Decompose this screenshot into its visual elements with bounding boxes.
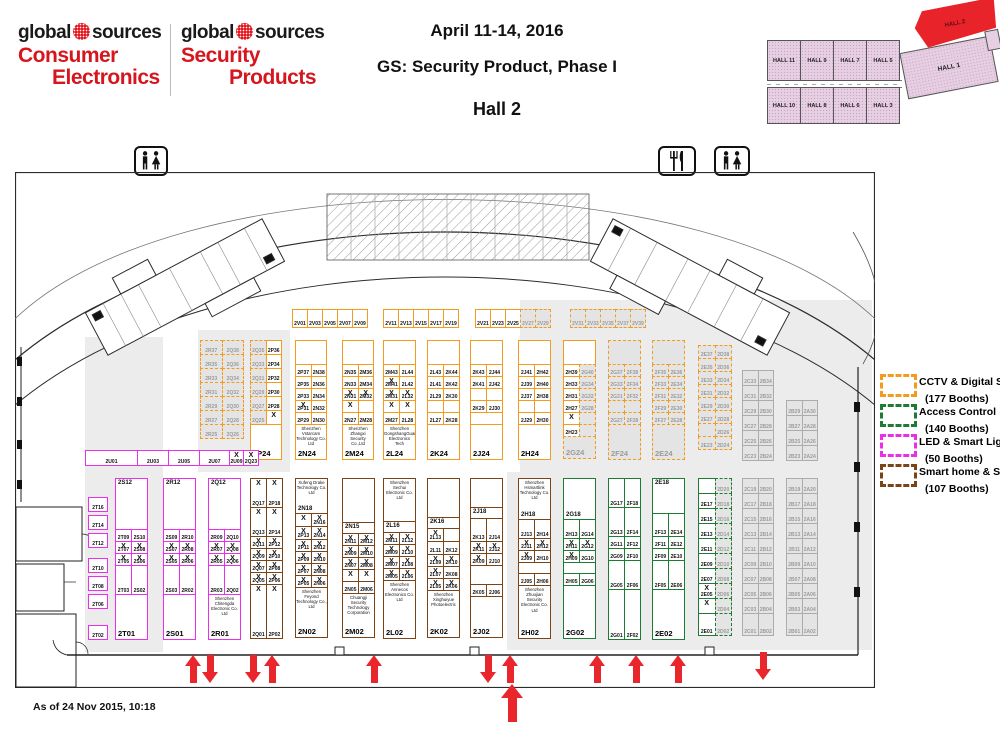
booth-row: 2B272A28 <box>786 415 818 431</box>
booth-row: 2Q25X <box>250 410 282 425</box>
booth-cell: 2B08 <box>758 568 775 584</box>
booth-cell: X <box>266 410 283 425</box>
booth-cell: 2T14 <box>88 515 108 530</box>
legend-swatch <box>880 434 917 457</box>
aisle-label: 2F24 <box>611 449 628 458</box>
booth-cell: 2T16 <box>88 497 108 512</box>
booth-row: 2B292A30 <box>786 400 818 416</box>
booth-number: 2A24 <box>803 454 818 460</box>
booth-cell: Shenzhen Chitengda Electronic Co. Ltd2R0… <box>208 594 241 640</box>
booth-cell: Shenzhen Zhuojian Security Electronic Co… <box>518 585 551 639</box>
booth-cell: 2Q27 <box>250 396 267 411</box>
booth-cell: 2R31 <box>200 382 223 397</box>
booth-cell: 2D38 <box>715 345 733 359</box>
booth-column: 2B192A202B172A182B152A162B132A142B112A12… <box>786 478 818 636</box>
booth-cell: 2R02 <box>179 565 196 595</box>
booth-row: 2C052B06 <box>742 583 774 599</box>
booth-column: 2S122T092S10X2T07X2S08X2T05X2S062T032S02… <box>115 478 148 640</box>
booth-row: 2B152A16 <box>786 508 818 524</box>
booth-cell: 2R03 <box>208 565 225 595</box>
booth-row: 2B192A20 <box>786 478 818 494</box>
fork-knife-glyph <box>665 150 689 172</box>
booth-cell: 2K24 <box>427 424 460 460</box>
booth-cell: 2S03 <box>163 565 180 595</box>
booth-cell: 2B12 <box>758 538 775 554</box>
booth-number: 2V29 <box>536 321 550 327</box>
booth-cell <box>563 340 596 365</box>
x-mark: X <box>384 402 399 409</box>
booth-number: 2B01 <box>787 629 802 635</box>
booth-cell: 2V39 <box>630 309 646 328</box>
booth-cell <box>698 423 716 437</box>
booth-row: 2C012B02 <box>742 613 774 636</box>
booth-column: 2P372N382P352N362P332N34X2P312N322P292N3… <box>295 340 327 460</box>
booth-row: 2C112B12 <box>742 538 774 554</box>
booth-row: 2T032S02 <box>115 565 148 595</box>
booth-cell <box>295 340 327 365</box>
exhibitor-name: Shenzhen Chitengda Electronic Co. Ltd <box>209 596 240 617</box>
minimap-hall-fragment <box>984 29 1000 51</box>
booth-cell: 2B14 <box>758 523 775 539</box>
booth-cell: 2C17 <box>742 493 759 509</box>
booth-cell: 2F24 <box>608 424 641 460</box>
legend-swatch <box>880 374 917 397</box>
booth-cell: 2P32 <box>266 368 283 383</box>
booth-column: 2L432K442L412K422L292K302L272K282K24 <box>427 340 460 460</box>
floor-plan-page: { "logos": [ {"brand_a": "global", "bran… <box>0 0 1000 746</box>
booth-cell: 2U01 <box>85 450 138 466</box>
booth-cell: 2B32 <box>758 385 775 401</box>
booth-cell: 2E37 <box>698 345 716 359</box>
booth-cell: X2P14 <box>266 507 283 537</box>
booth-cell: 2B28 <box>758 415 775 431</box>
minimap-hall-cell: HALL 7 <box>833 40 867 81</box>
booth-cell: X2Q13 <box>250 507 267 537</box>
booth-number: 2U05 <box>169 459 199 465</box>
booth-cell: 2V31 <box>570 309 586 328</box>
booth-strip: 2V212V232V252V272V29 <box>475 309 551 328</box>
minimap-hall1: HALL 1 <box>899 36 998 100</box>
booth-row: 2J132H14 <box>518 519 551 539</box>
man-woman-glyph <box>138 150 164 172</box>
booth-cell <box>443 528 460 542</box>
booth-row: 2G172F18 <box>608 478 641 508</box>
booth-cell: 2Q33 <box>250 354 267 369</box>
booth-cell: 2V37 <box>615 309 631 328</box>
booth-cell: 2B20 <box>758 478 775 494</box>
booth-cell: 2E33 <box>698 371 716 385</box>
booth-row: 2E092D10 <box>698 553 732 569</box>
legend-label: Access Control <box>919 406 996 418</box>
entrance-arrow-up <box>589 655 605 683</box>
booth-number: 2R25 <box>201 432 222 438</box>
booth-number: 2G01 <box>609 633 624 639</box>
booth-cell: 2A06 <box>802 583 819 599</box>
booth-column: 2B292A302B272A282B252A262B232A24 <box>786 400 818 461</box>
exhibitor-name: Shenzhen GongshangGuangtian Electronics … <box>384 426 415 447</box>
booth-row: XX2N16 <box>295 513 328 527</box>
section-label: 2N18 <box>298 506 312 512</box>
booth-cell: 2L11 <box>427 541 444 555</box>
brand-global: global <box>181 22 234 43</box>
booth-cell: 2V09 <box>352 309 368 328</box>
booth-cell: 2A12 <box>802 538 819 554</box>
booth-row: 2Q292P30 <box>250 382 282 397</box>
booth-cell: Chuangji Security Technology Corporation… <box>342 593 375 638</box>
booth-cell: 2H18Shenzhen Hsmartlink Technology Co. L… <box>518 478 551 520</box>
minimap-hall-cell: HALL 5 <box>866 40 900 81</box>
logo-line-consumer: Consumer <box>18 44 118 68</box>
booth-cell: 2A26 <box>802 430 819 446</box>
aisle-label: 2L24 <box>386 449 403 458</box>
booth-cell: 2Q35 <box>250 340 267 355</box>
booth-cell: 2F14 <box>624 507 641 537</box>
booth-row: 2G012F02 <box>608 589 641 640</box>
booth-row: 2E292D30 <box>698 397 732 411</box>
booth-cell: 2S12 <box>115 478 148 530</box>
booth-cell: 2F18 <box>624 478 641 508</box>
aisle-label: 2E02 <box>655 629 673 638</box>
booth-layer: 2R372Q382R352Q362R332Q342R312Q322R292Q30… <box>15 172 875 688</box>
booth-number: 2V09 <box>353 321 367 327</box>
booth-cell: 2A08 <box>802 568 819 584</box>
booth-cell: 2Q02 <box>224 565 241 595</box>
booth-cell: 2V17 <box>428 309 444 328</box>
x-mark: X <box>267 586 282 593</box>
aisle-label: 2H24 <box>521 449 539 458</box>
booth-cell: X2L13 <box>427 528 444 542</box>
legend-booth-count: (177 Booths) <box>925 393 989 405</box>
booth-number: 2V07 <box>338 321 352 327</box>
booth-row: 2E152D16 <box>698 508 732 524</box>
booth-column: 2H392G402H332G342H312G322H272G28X2H232G2… <box>563 340 596 459</box>
exhibitor-name: Shenzhen Feyond Technology Co., Ltd <box>296 589 327 610</box>
aisle-label: 2S01 <box>166 629 184 638</box>
booth-cell: Shenzhen Zhangxi Security Co.,Ltd2M24 <box>342 424 374 460</box>
booth-cell: 2E18 <box>652 478 685 514</box>
booth-row: 2B112A12 <box>786 538 818 554</box>
minimap-hall-cell: HALL 11 <box>767 40 801 81</box>
x-mark: X <box>564 414 579 421</box>
legend-label: CCTV & Digital Surveillance <box>919 376 1000 388</box>
booth-cell: 2V07 <box>337 309 353 328</box>
exhibitor-name: Shenzhen Annecos Electronics Co. Ltd <box>384 582 415 603</box>
booth-column: X2Q17X2P18X2Q13X2P14X2Q11X2P12X2Q09X2P10… <box>250 478 283 639</box>
entrance-arrow-up <box>185 655 201 683</box>
x-mark: X <box>343 402 358 409</box>
booth-cell: 2V23 <box>490 309 506 328</box>
booth-cell: 2B15 <box>786 508 803 524</box>
booth-cell: 2J02 <box>470 596 503 638</box>
x-mark: X <box>267 412 282 419</box>
booth-column: 2G182H132G14X2H11X2G12X2H092G102H052G062… <box>563 478 596 639</box>
booth-cell: X2E05 <box>698 583 716 599</box>
booth-cell: X2U09 <box>229 450 244 466</box>
booth-cell: 2A14 <box>802 523 819 539</box>
booth-number: 2V37 <box>616 321 630 327</box>
booth-cell: 2B16 <box>758 508 775 524</box>
booth-number: 2T08 <box>89 584 107 590</box>
entrance-arrow-down <box>480 655 496 683</box>
booth-row: 2Q312P32 <box>250 368 282 383</box>
booth-cell: 2V13 <box>398 309 414 328</box>
booth-cell: 2D04 <box>715 598 733 614</box>
booth-cell: 2V27 <box>520 309 536 328</box>
booth-cell: 2Q30 <box>222 396 245 411</box>
entrance-arrow-up <box>264 655 280 683</box>
booth-cell: 2A30 <box>802 400 819 416</box>
booth-number: 2V35 <box>601 321 615 327</box>
booth-cell: 2E06 <box>668 560 685 590</box>
booth-cell: 2T06 <box>88 594 108 609</box>
booth-row: 2R292Q30 <box>200 396 244 411</box>
exhibitor-name: Shenzhen Zhuojian Security Electronic Co… <box>519 587 550 613</box>
minimap-hall-cell: HALL 8 <box>800 87 834 124</box>
booth-cell: 2R12 <box>163 478 196 530</box>
booth-row: 2B052A06 <box>786 583 818 599</box>
booth-cell: 2T08 <box>88 576 108 591</box>
booth-cell: 2E31 <box>698 384 716 398</box>
booth-cell: 2G14 <box>579 519 596 539</box>
booth-cell: 2V03 <box>307 309 323 328</box>
booth-number: 2D02 <box>716 629 732 635</box>
booth-row: 2B252A26 <box>786 430 818 446</box>
booth-cell: 2B04 <box>758 598 775 614</box>
booth-cell <box>470 340 503 365</box>
x-mark: X <box>343 571 358 578</box>
booth-row: 2G052F06 <box>608 560 641 590</box>
section-label: 2G18 <box>566 512 581 518</box>
booth-cell: 2A16 <box>802 508 819 524</box>
booth-cell: 2B27 <box>786 415 803 431</box>
booth-cell: 2A20 <box>802 478 819 494</box>
booth-cell: 2C11 <box>742 538 759 554</box>
booth-cell <box>342 340 374 365</box>
booth-row: 2C072B08 <box>742 568 774 584</box>
booth-row: 2C192B20 <box>742 478 774 494</box>
booth-cell: 2G02 <box>563 585 596 639</box>
exhibitor-name: Shenzhen Vstarcam Technology Co. Ltd <box>296 426 326 447</box>
booth-cell: 2B23 <box>786 445 803 461</box>
booth-row: 2C332B34 <box>742 370 774 386</box>
booth-cell: 2E24 <box>652 424 685 460</box>
booth-row: 2B232A24 <box>786 445 818 461</box>
booth-cell: 2B17 <box>786 493 803 509</box>
booth-cell: X2Q17 <box>250 478 267 508</box>
booth-cell: Shenzhen Vstarcam Technology Co. Ltd2N24 <box>295 424 327 460</box>
hall2-floor-plan: 2R372Q382R352Q362R332Q342R312Q322R292Q30… <box>15 172 875 688</box>
booth-number: 2T06 <box>89 602 107 608</box>
booth-strip: 2V312V332V352V372V39 <box>570 309 646 328</box>
booth-cell: X2P13 <box>295 526 312 540</box>
booth-cell <box>652 340 685 365</box>
booth-number: 2A02 <box>803 629 818 635</box>
booth-row: 2R372Q38 <box>200 340 244 355</box>
booth-cell: 2D18 <box>715 493 733 509</box>
booth-number: 2B02 <box>759 629 774 635</box>
booth-cell: 2D32 <box>715 384 733 398</box>
x-mark: X <box>267 480 282 487</box>
section-label: 2S12 <box>118 480 132 486</box>
booth-row: 2E332D34 <box>698 371 732 385</box>
booth-cell: 2D26 <box>715 423 733 437</box>
booth-cell: 2B30 <box>758 400 775 416</box>
aisle-label: 2G02 <box>566 628 584 637</box>
booth-cell: X2P18 <box>266 478 283 508</box>
booth-cell: 2E35 <box>698 358 716 372</box>
booth-cell: 2V29 <box>535 309 551 328</box>
minimap-hall-cell: HALL 6 <box>833 87 867 124</box>
booth-number: 2P02 <box>267 632 282 638</box>
booth-cell: 2D10 <box>715 553 733 569</box>
booth-cell: 2D02 <box>715 613 733 636</box>
minimap-hall-cell: HALL 9 <box>800 40 834 81</box>
booth-column: 2G372F382G332F342G312F322G272F282F24 <box>608 340 641 460</box>
booth-row: 2D26 <box>698 423 732 437</box>
section-label: 2L16 <box>386 523 400 529</box>
legend-label: Smart home & Systems <box>919 466 1000 478</box>
booth-cell: 2C01 <box>742 613 759 636</box>
booth-row: X2P13X2N14 <box>295 526 328 540</box>
timestamp: As of 24 Nov 2015, 10:18 <box>33 701 156 713</box>
booth-row: 2C172B18 <box>742 493 774 509</box>
booth-row: 2C152B16 <box>742 508 774 524</box>
logo-security-products: globalsources <box>181 22 324 44</box>
booth-cell: 2F05 <box>652 560 669 590</box>
booth-row: 2E272D28 <box>698 410 732 424</box>
booth-row: 2C272B28 <box>742 415 774 431</box>
booth-cell: 2R37 <box>200 340 223 355</box>
booth-cell: 2Q38 <box>222 340 245 355</box>
booth-cell: 2D06 <box>715 583 733 599</box>
booth-cell: 2E02 <box>652 589 685 640</box>
booth-cell: 2B11 <box>786 538 803 554</box>
booth-cell: 2J24 <box>470 424 503 460</box>
booth-column: 2R122S092R10X2S07X2R08X2S05X2R062S032R02… <box>163 478 196 640</box>
legend-booth-count: (140 Booths) <box>925 423 989 435</box>
booth-cell: 2B06 <box>758 583 775 599</box>
booth-cell: 2B10 <box>758 553 775 569</box>
booth-column: 2C332B342C312B322C292B302C272B282C252B26… <box>742 370 774 461</box>
globe-icon <box>236 23 253 40</box>
aisle-label: 2J02 <box>473 627 490 636</box>
booth-number: 2Q23 <box>244 459 258 465</box>
booth-row: 2E172D18 <box>698 493 732 509</box>
booth-number: 2U07 <box>200 459 229 465</box>
booth-cell: 2A02 <box>802 613 819 636</box>
booth-row: 2E372D38 <box>698 345 732 359</box>
booth-cell: 2C33 <box>742 370 759 386</box>
exhibitor-name: Xufeng Drake Technology Co. Ltd <box>296 480 327 495</box>
booth-cell: Shenzhen Sechui Electronic Co. Ltd <box>383 478 416 522</box>
booth-cell: 2U07 <box>199 450 230 466</box>
booth-cell: 2T03 <box>115 565 132 595</box>
booth-row: X2L13 <box>427 528 460 542</box>
booth-cell: Shenzhen Feyond Technology Co., Ltd2N02 <box>295 587 328 638</box>
booth-cell: 2U05 <box>168 450 200 466</box>
booth-cell: 2V15 <box>413 309 429 328</box>
entrance-arrow-up <box>670 655 686 683</box>
booth-row: 2C092B10 <box>742 553 774 569</box>
booth-row: 2C032B04 <box>742 598 774 614</box>
booth-cell: 2B03 <box>786 598 803 614</box>
booth-cell: 2T01 <box>115 594 148 640</box>
x-mark: X <box>251 509 266 516</box>
booth-cell: 2B07 <box>786 568 803 584</box>
booth-cell: 2K12 <box>443 541 460 555</box>
aisle-label: 2M02 <box>345 627 364 636</box>
booth-cell: 2E15 <box>698 508 716 524</box>
booth-cell: 2Q31 <box>250 368 267 383</box>
brand-global: global <box>18 22 71 43</box>
booth-cell: 2P36 <box>266 340 283 355</box>
booth-cell: 2D36 <box>715 358 733 372</box>
booth-cell: 2R33 <box>200 368 223 383</box>
booth-cell: 2G24 <box>563 436 596 459</box>
booth-cell: 2P34 <box>266 354 283 369</box>
booth-cell: 2K13 <box>470 518 487 542</box>
booth-row: 2E352D36 <box>698 358 732 372</box>
booth-row: 2R332Q34 <box>200 368 244 383</box>
booth-column: 2E372D382E352D362E332D342E312D322E292D30… <box>698 345 732 450</box>
booth-number: 2E01 <box>699 629 715 635</box>
booth-cell: 2H24 <box>518 424 551 460</box>
booth-cell: 2B25 <box>786 430 803 446</box>
booth-row: 2Q272P28 <box>250 396 282 411</box>
booth-number: 2V21 <box>476 321 490 327</box>
booth-cell: 2F02 <box>624 589 641 640</box>
aisle-label: 2T01 <box>118 629 135 638</box>
booth-column: 2M432L44X2M412L42X2M31X2L32XX2M272L28She… <box>383 340 416 460</box>
booth-cell: 2G05 <box>608 560 625 590</box>
booth-cell: 2H14 <box>534 519 551 539</box>
booth-row: 2D20 <box>698 478 732 494</box>
booth-number: 2T14 <box>89 523 107 529</box>
booth-row: 2B072A08 <box>786 568 818 584</box>
minimap-hall-cell: HALL 10 <box>767 87 801 124</box>
entrance-arrow-down <box>755 652 771 680</box>
booth-cell: 2V05 <box>322 309 338 328</box>
booth-cell: 2S01 <box>163 594 196 640</box>
booth-row: 2B092A10 <box>786 553 818 569</box>
hall1-label: HALL 1 <box>937 62 961 73</box>
exhibitor-name: Chuangji Security Technology Corporation <box>343 595 374 616</box>
booth-row: 2R312Q32 <box>200 382 244 397</box>
booth-cell: 2D24 <box>715 436 733 450</box>
booth-cell: 2C03 <box>742 598 759 614</box>
booth-number: 2V27 <box>521 321 535 327</box>
booth-cell: 2D20 <box>715 478 733 494</box>
x-mark: X <box>267 509 282 516</box>
booth-cell: 2V35 <box>600 309 616 328</box>
booth-cell: 2R25 <box>200 424 223 439</box>
booth-cell: 2P28 <box>266 396 283 411</box>
booth-cell: 2Q32 <box>222 382 245 397</box>
hall2-label: HALL 2 <box>944 19 966 29</box>
booth-cell: 2D08 <box>715 568 733 584</box>
booth-cell <box>383 340 416 365</box>
booth-cell: 2V25 <box>505 309 521 328</box>
booth-cell: 2D12 <box>715 538 733 554</box>
booth-cell: 2B09 <box>786 553 803 569</box>
x-mark: X <box>359 571 374 578</box>
booth-cell: 2A28 <box>802 415 819 431</box>
booth-cell: 2B18 <box>758 493 775 509</box>
booth-cell: 2A24 <box>802 445 819 461</box>
booth-cell: 2N18Xufeng Drake Technology Co. Ltd <box>295 478 328 514</box>
booth-row: 2C132B14 <box>742 523 774 539</box>
booth-cell: 2E07 <box>698 568 716 584</box>
